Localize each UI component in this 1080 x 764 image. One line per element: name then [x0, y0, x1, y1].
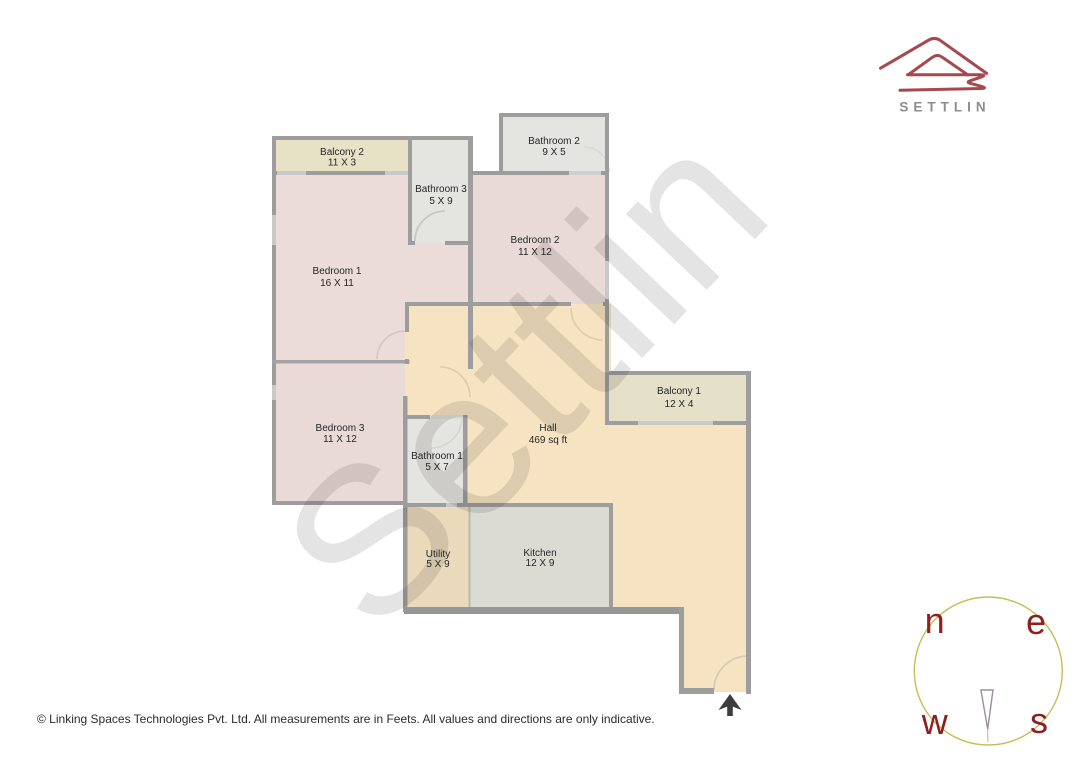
svg-text:12 X 4: 12 X 4: [665, 399, 694, 410]
svg-text:469 sq ft: 469 sq ft: [529, 435, 568, 446]
svg-text:Bathroom 1: Bathroom 1: [411, 451, 463, 462]
svg-text:n: n: [925, 600, 945, 641]
svg-text:5 X 9: 5 X 9: [429, 196, 453, 207]
svg-text:Bedroom 3: Bedroom 3: [316, 423, 365, 434]
svg-text:11 X 12: 11 X 12: [323, 434, 357, 445]
svg-text:Balcony 1: Balcony 1: [657, 386, 701, 397]
svg-text:Bedroom 1: Bedroom 1: [313, 266, 362, 277]
svg-text:SETTLIN: SETTLIN: [899, 100, 990, 115]
svg-text:Balcony 2: Balcony 2: [320, 147, 364, 158]
svg-text:5 X 9: 5 X 9: [426, 559, 450, 570]
svg-text:11 X 3: 11 X 3: [328, 158, 357, 169]
svg-text:e: e: [1026, 601, 1046, 642]
svg-text:© Linking Spaces Technologies: © Linking Spaces Technologies Pvt. Ltd. …: [37, 712, 655, 726]
svg-text:Bedroom 2: Bedroom 2: [511, 235, 560, 246]
svg-text:11 X 12: 11 X 12: [518, 247, 552, 258]
svg-text:9 X 5: 9 X 5: [542, 147, 566, 158]
svg-text:16 X 11: 16 X 11: [320, 278, 354, 289]
svg-text:12 X 9: 12 X 9: [526, 558, 555, 569]
svg-text:Bathroom 3: Bathroom 3: [415, 184, 467, 195]
svg-text:Hall: Hall: [539, 423, 556, 434]
svg-text:s: s: [1030, 700, 1048, 741]
svg-text:Bathroom 2: Bathroom 2: [528, 136, 580, 147]
svg-text:w: w: [921, 701, 949, 742]
svg-text:5 X 7: 5 X 7: [425, 462, 449, 473]
